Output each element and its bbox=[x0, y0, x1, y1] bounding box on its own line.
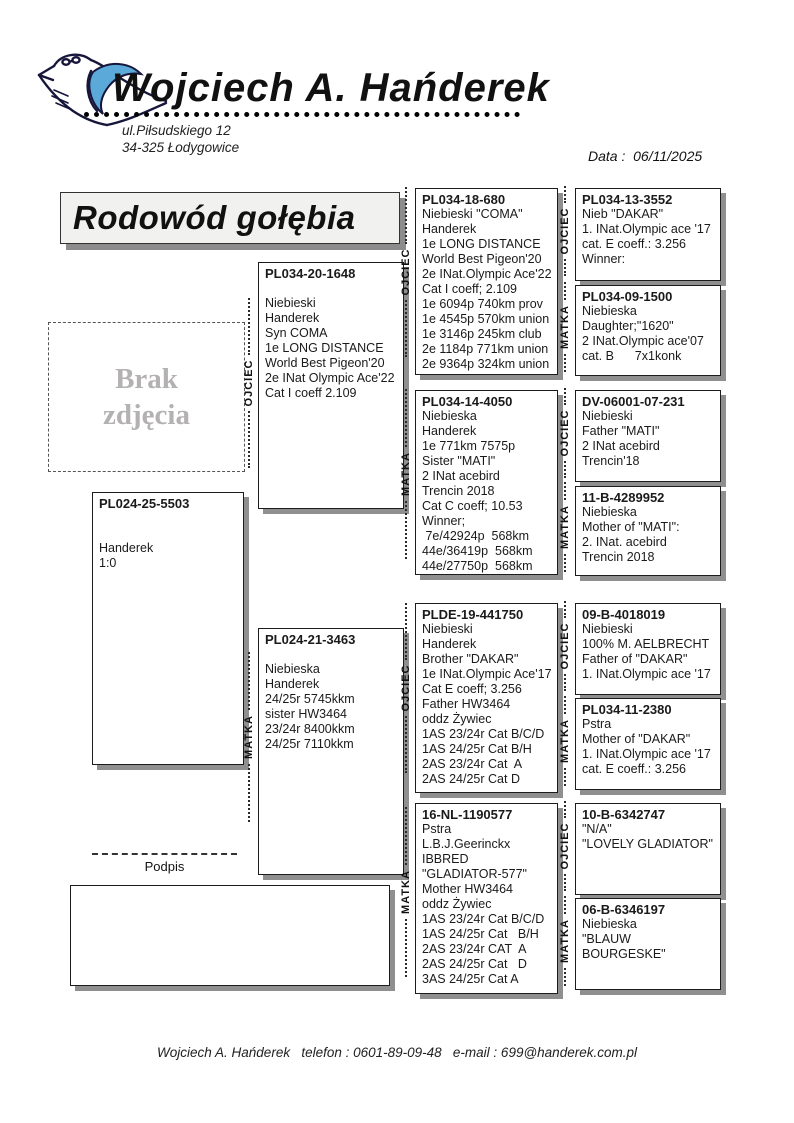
pedigree-text-line: Sister "MATI" bbox=[422, 454, 554, 469]
pedigree-text-line: Winner; bbox=[422, 514, 554, 529]
relation-label-father: OJCIEC bbox=[557, 388, 573, 478]
pedigree-text-line: Niebieska bbox=[582, 917, 717, 932]
ring-number: PL034-18-680 bbox=[422, 192, 554, 207]
pedigree-text-line: 7e/42924p 568km bbox=[422, 529, 554, 544]
signature-dashed-line bbox=[92, 853, 237, 855]
pedigree-text-line: Handerek bbox=[99, 541, 240, 556]
pedigree-text-line: Niebieski bbox=[422, 622, 554, 637]
pedigree-text-line: 2. INat. acebird bbox=[582, 535, 717, 550]
pedigree-text-line: Niebieski bbox=[265, 296, 400, 311]
pedigree-text-line: 2e INat.Olympic Ace'22 bbox=[422, 267, 554, 282]
pedigree-text-line: Trencin'18 bbox=[582, 454, 717, 469]
relation-label-mother: MATKA bbox=[241, 652, 257, 822]
pedigree-text-line bbox=[265, 647, 400, 662]
pbox-lines: NiebieskaHanderek1e 771km 7575pSister "M… bbox=[422, 409, 554, 574]
ring-number: PL024-25-5503 bbox=[99, 496, 240, 511]
pedigree-text-line: cat. B 7x1konk bbox=[582, 349, 717, 364]
pedigree-text-line: Pstra bbox=[582, 717, 717, 732]
pedigree-text-line bbox=[265, 281, 400, 296]
ring-number: PL034-09-1500 bbox=[582, 289, 717, 304]
pedigree-text-line: 2 INat acebird bbox=[582, 439, 717, 454]
pedigree-text-line: 2e 1184p 771km union bbox=[422, 342, 554, 357]
pedigree-text-line: Niebieska bbox=[422, 409, 554, 424]
pedigree-text-line: 2AS 24/25r Cat D bbox=[422, 957, 554, 972]
pedigree-text-line: "LOVELY GLADIATOR" bbox=[582, 837, 717, 852]
pedigree-text-line: 44e/27750p 568km bbox=[422, 559, 554, 574]
pbox-lines: NiebieskiHanderekBrother "DAKAR"1e INat.… bbox=[422, 622, 554, 787]
pedigree-text-line: Niebieska bbox=[582, 304, 717, 319]
pedigree-text-line: 24/25r 5745kkm bbox=[265, 692, 400, 707]
pedigree-text-line: "GLADIATOR-577" bbox=[422, 867, 554, 882]
pedigree-text-line: Cat E coeff; 3.256 bbox=[422, 682, 554, 697]
pedigree-text-line: Handerek bbox=[422, 222, 554, 237]
relation-label-mother: MATKA bbox=[398, 389, 414, 559]
pbox-great-grandparent-4: 11-B-4289952 NiebieskaMother of "MATI":2… bbox=[575, 486, 721, 576]
pedigree-text-line: 1e 6094p 740km prov bbox=[422, 297, 554, 312]
pbox-paternal-grandfather: PL034-18-680 Niebieski "COMA"Handerek1e … bbox=[415, 188, 558, 375]
relation-label-mother: MATKA bbox=[557, 282, 573, 372]
pbox-lines: PstraMother of "DAKAR"1. INat.Olympic ac… bbox=[582, 717, 717, 777]
pedigree-text-line: 2e INat Olympic Ace'22 bbox=[265, 371, 400, 386]
pedigree-text-line: 1:0 bbox=[99, 556, 240, 571]
pedigree-text-line: oddz Żywiec bbox=[422, 712, 554, 727]
relation-label-mother: MATKA bbox=[557, 896, 573, 986]
pedigree-text-line: Winner: bbox=[582, 252, 717, 267]
pedigree-text-line: 1e LONG DISTANCE bbox=[265, 341, 400, 356]
pedigree-text-line: Daughter;"1620" bbox=[582, 319, 717, 334]
pedigree-text-line: cat. E coeff.: 3.256 bbox=[582, 762, 717, 777]
pedigree-text-line: 2AS 23/24r Cat A bbox=[422, 757, 554, 772]
signature-label: Podpis bbox=[92, 859, 237, 874]
pedigree-text-line: 23/24r 8400kkm bbox=[265, 722, 400, 737]
pedigree-text-line: 1. INat.Olympic ace '17 bbox=[582, 747, 717, 762]
pedigree-text-line: Trencin 2018 bbox=[422, 484, 554, 499]
pbox-great-grandparent-1: PL034-13-3552 Nieb "DAKAR"1. INat.Olympi… bbox=[575, 188, 721, 281]
pedigree-text-line: 1. INat.Olympic ace '17 bbox=[582, 667, 717, 682]
pedigree-document-page: Wojciech A. Hańderek ul.Piłsudskiego 12 … bbox=[0, 0, 794, 1123]
pbox-lines: PstraL.B.J.GeerinckxIBBRED"GLADIATOR-577… bbox=[422, 822, 554, 987]
pedigree-text-line: L.B.J.Geerinckx bbox=[422, 837, 554, 852]
pbox-lines: Niebieska"BLAUW BOURGESKE" bbox=[582, 917, 717, 962]
pedigree-text-line: oddz Żywiec bbox=[422, 897, 554, 912]
pbox-great-grandparent-3: DV-06001-07-231 NiebieskiFather "MATI"2 … bbox=[575, 390, 721, 482]
ring-number: 16-NL-1190577 bbox=[422, 807, 554, 822]
date-value: 06/11/2025 bbox=[633, 148, 702, 164]
pedigree-text-line: 1e INat.Olympic Ace'17 bbox=[422, 667, 554, 682]
date-line: Data : 06/11/2025 bbox=[588, 148, 702, 164]
pbox-great-grandparent-5: 09-B-4018019 Niebieski100% M. AELBRECHTF… bbox=[575, 603, 721, 695]
pbox-great-grandparent-2: PL034-09-1500 NiebieskaDaughter;"1620"2 … bbox=[575, 285, 721, 376]
pedigree-text-line: 2AS 24/25r Cat D bbox=[422, 772, 554, 787]
relation-label-father: OJCIEC bbox=[557, 601, 573, 691]
pbox-lines: Nieb "DAKAR"1. INat.Olympic ace '17cat. … bbox=[582, 207, 717, 267]
signature-box bbox=[70, 885, 390, 986]
ring-number: PL034-14-4050 bbox=[422, 394, 554, 409]
photo-placeholder-text: Brak zdjęcia bbox=[92, 361, 202, 434]
pedigree-text-line: Cat I coeff; 2.109 bbox=[422, 282, 554, 297]
pbox-lines: NiebieskiHanderekSyn COMA1e LONG DISTANC… bbox=[265, 281, 400, 401]
pedigree-text-line: Handerek bbox=[265, 677, 400, 692]
ring-number: PL034-13-3552 bbox=[582, 192, 717, 207]
pbox-great-grandparent-8: 06-B-6346197 Niebieska"BLAUW BOURGESKE" bbox=[575, 898, 721, 990]
pedigree-text-line: World Best Pigeon'20 bbox=[422, 252, 554, 267]
pbox-lines: NiebieskiFather "MATI"2 INat acebirdTren… bbox=[582, 409, 717, 469]
pedigree-text-line: Trencin 2018 bbox=[582, 550, 717, 565]
pedigree-text-line: Handerek bbox=[422, 424, 554, 439]
pbox-maternal-grandfather: PLDE-19-441750 NiebieskiHanderekBrother … bbox=[415, 603, 558, 793]
pedigree-text-line: Mother of "MATI": bbox=[582, 520, 717, 535]
brand-underline bbox=[84, 112, 520, 117]
pedigree-text-line: 1AS 23/24r Cat B/C/D bbox=[422, 727, 554, 742]
ring-number: PLDE-19-441750 bbox=[422, 607, 554, 622]
pedigree-text-line: Brother "DAKAR" bbox=[422, 652, 554, 667]
pedigree-text-line: cat. E coeff.: 3.256 bbox=[582, 237, 717, 252]
pbox-great-grandparent-6: PL034-11-2380 PstraMother of "DAKAR"1. I… bbox=[575, 698, 721, 790]
pbox-lines: NiebieskaMother of "MATI":2. INat. acebi… bbox=[582, 505, 717, 565]
relation-label-mother: MATKA bbox=[398, 807, 414, 977]
ring-number: PL034-20-1648 bbox=[265, 266, 400, 281]
pedigree-text-line: Mother HW3464 bbox=[422, 882, 554, 897]
pedigree-text-line: Niebieski bbox=[582, 409, 717, 424]
pedigree-text-line: 1AS 23/24r Cat B/C/D bbox=[422, 912, 554, 927]
pedigree-text-line: 2AS 23/24r CAT A bbox=[422, 942, 554, 957]
pedigree-text-line: IBBRED bbox=[422, 852, 554, 867]
pedigree-text-line bbox=[99, 511, 240, 526]
pedigree-text-line: Father HW3464 bbox=[422, 697, 554, 712]
pbox-mother: PL024-21-3463 NiebieskaHanderek24/25r 57… bbox=[258, 628, 404, 875]
pedigree-text-line: Niebieski bbox=[582, 622, 717, 637]
pedigree-text-line: Pstra bbox=[422, 822, 554, 837]
pedigree-text-line: Mother of "DAKAR" bbox=[582, 732, 717, 747]
address-city: 34-325 Łodygowice bbox=[122, 140, 239, 155]
document-title: Rodowód gołębia bbox=[61, 199, 355, 237]
pedigree-text-line: Father "MATI" bbox=[582, 424, 717, 439]
pedigree-text-line: 1AS 24/25r Cat B/H bbox=[422, 742, 554, 757]
relation-label-father: OJCIEC bbox=[557, 186, 573, 276]
pedigree-text-line: World Best Pigeon'20 bbox=[265, 356, 400, 371]
pbox-father: PL034-20-1648 NiebieskiHanderekSyn COMA1… bbox=[258, 262, 404, 509]
pedigree-text-line: Syn COMA bbox=[265, 326, 400, 341]
pbox-lines: NiebieskaDaughter;"1620"2 INat.Olympic a… bbox=[582, 304, 717, 364]
pedigree-text-line: Handerek bbox=[422, 637, 554, 652]
relation-label-father: OJCIEC bbox=[398, 603, 414, 773]
pedigree-text-line: Handerek bbox=[265, 311, 400, 326]
document-title-box: Rodowód gołębia bbox=[60, 192, 400, 244]
brand-name: Wojciech A. Hańderek bbox=[112, 66, 550, 111]
relation-label-mother: MATKA bbox=[557, 482, 573, 572]
ring-number: 11-B-4289952 bbox=[582, 490, 717, 505]
pedigree-text-line: Nieb "DAKAR" bbox=[582, 207, 717, 222]
relation-label-father: OJCIEC bbox=[557, 801, 573, 891]
relation-label-mother: MATKA bbox=[557, 696, 573, 786]
pbox-subject: PL024-25-5503 Handerek1:0 bbox=[92, 492, 244, 765]
pedigree-text-line: 1e 3146p 245km club bbox=[422, 327, 554, 342]
ring-number: 06-B-6346197 bbox=[582, 902, 717, 917]
pedigree-text-line: sister HW3464 bbox=[265, 707, 400, 722]
pbox-lines: Niebieski "COMA"Handerek1e LONG DISTANCE… bbox=[422, 207, 554, 372]
pedigree-text-line: 1AS 24/25r Cat B/H bbox=[422, 927, 554, 942]
address-street: ul.Piłsudskiego 12 bbox=[122, 123, 231, 138]
ring-number: PL034-11-2380 bbox=[582, 702, 717, 717]
pedigree-text-line bbox=[99, 526, 240, 541]
pedigree-text-line: 100% M. AELBRECHT bbox=[582, 637, 717, 652]
relation-label-father: OJCIEC bbox=[398, 187, 414, 357]
pedigree-text-line: 1e 771km 7575p bbox=[422, 439, 554, 454]
pedigree-text-line: Niebieska bbox=[265, 662, 400, 677]
pedigree-text-line: 1. INat.Olympic ace '17 bbox=[582, 222, 717, 237]
pedigree-text-line: 1e LONG DISTANCE bbox=[422, 237, 554, 252]
pbox-lines: NiebieskaHanderek24/25r 5745kkmsister HW… bbox=[265, 647, 400, 752]
ring-number: 09-B-4018019 bbox=[582, 607, 717, 622]
pedigree-text-line: 44e/36419p 568km bbox=[422, 544, 554, 559]
pbox-paternal-grandmother: PL034-14-4050 NiebieskaHanderek1e 771km … bbox=[415, 390, 558, 575]
pbox-lines: Niebieski100% M. AELBRECHTFather of "DAK… bbox=[582, 622, 717, 682]
photo-placeholder-box: Brak zdjęcia bbox=[48, 322, 245, 472]
ring-number: 10-B-6342747 bbox=[582, 807, 717, 822]
ring-number: DV-06001-07-231 bbox=[582, 394, 717, 409]
pedigree-text-line: Cat C coeff; 10.53 bbox=[422, 499, 554, 514]
pedigree-text-line: 3AS 24/25r Cat A bbox=[422, 972, 554, 987]
pbox-lines: Handerek1:0 bbox=[99, 511, 240, 571]
pedigree-text-line: 24/25r 7110kkm bbox=[265, 737, 400, 752]
pedigree-text-line: 1e 4545p 570km union bbox=[422, 312, 554, 327]
pedigree-text-line: "BLAUW BOURGESKE" bbox=[582, 932, 717, 962]
pedigree-text-line: Cat I coeff 2.109 bbox=[265, 386, 400, 401]
pedigree-text-line: Niebieski "COMA" bbox=[422, 207, 554, 222]
pedigree-text-line: 2e 9364p 324km union bbox=[422, 357, 554, 372]
pedigree-text-line: "N/A" bbox=[582, 822, 717, 837]
pbox-great-grandparent-7: 10-B-6342747 "N/A""LOVELY GLADIATOR" bbox=[575, 803, 721, 895]
pedigree-text-line: Father of "DAKAR" bbox=[582, 652, 717, 667]
date-label: Data : bbox=[588, 148, 633, 164]
ring-number: PL024-21-3463 bbox=[265, 632, 400, 647]
pedigree-text-line: Niebieska bbox=[582, 505, 717, 520]
pedigree-text-line: 2 INat acebird bbox=[422, 469, 554, 484]
pbox-lines: "N/A""LOVELY GLADIATOR" bbox=[582, 822, 717, 852]
relation-label-father: OJCIEC bbox=[241, 298, 257, 468]
footer-contact-line: Wojciech A. Hańderek telefon : 0601-89-0… bbox=[0, 1045, 794, 1060]
pbox-maternal-grandmother: 16-NL-1190577 PstraL.B.J.GeerinckxIBBRED… bbox=[415, 803, 558, 994]
pedigree-text-line: 2 INat.Olympic ace'07 bbox=[582, 334, 717, 349]
